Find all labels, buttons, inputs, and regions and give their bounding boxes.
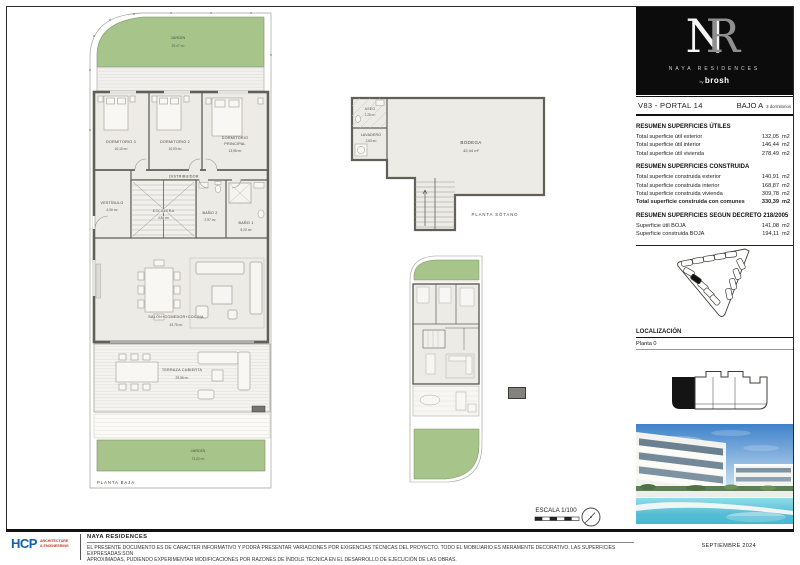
svg-text:2,28 m²: 2,28 m² — [365, 113, 376, 117]
floor-label: PLANTA BAJA — [97, 480, 135, 485]
sofa — [196, 262, 244, 274]
mini-table — [420, 395, 440, 405]
room-name: JARDÍN — [191, 449, 206, 453]
project-name: NAYA RESIDENCES — [87, 534, 634, 543]
svg-text:42,44 m²: 42,44 m² — [463, 148, 479, 153]
building-right — [734, 464, 793, 488]
dining-table — [145, 268, 173, 312]
room-name: DISTRIBUIDOR — [169, 175, 199, 179]
svg-text:4,84 m²: 4,84 m² — [158, 216, 170, 220]
section-marker — [508, 387, 526, 399]
location-floor: Planta 0 — [636, 338, 793, 350]
render-photo — [636, 424, 793, 524]
floor-label: PLANTA SÓTANO — [472, 212, 519, 217]
svg-text:PRINCIPAL: PRINCIPAL — [224, 142, 245, 146]
sofa — [250, 262, 262, 314]
svg-text:43,75 m²: 43,75 m² — [169, 323, 183, 327]
mini-terrace — [413, 386, 479, 416]
table-section: RESUMEN SUPERFICIES SEGUN DECRETO 218/20… — [636, 213, 793, 239]
garden-bottom: JARDÍN 73,02 m² — [97, 440, 265, 471]
mini-plan — [408, 254, 486, 486]
building-elevation — [665, 368, 785, 420]
plan-sheet: JARDÍN 29,47 m² — [0, 0, 800, 565]
room-name: BAÑO 2 — [202, 210, 217, 215]
unit-header: V83 - PORTAL 14 BAJO A 3 dormitorios — [636, 96, 793, 116]
elevation-outline — [695, 372, 767, 410]
table-row: Superficie útil BOJA141,08m2 — [636, 222, 793, 230]
room-name: DORMITORIO 3 — [106, 140, 136, 144]
svg-text:29,56 m²: 29,56 m² — [175, 376, 189, 380]
hcp-tagline: ARCHITECTURE& ENGINEERING — [40, 539, 69, 547]
side-table — [212, 370, 223, 381]
svg-text:10,10 m²: 10,10 m² — [114, 147, 128, 151]
step-marker — [252, 406, 265, 412]
pergola-strip — [97, 67, 264, 92]
table-row: Total superficie útil exterior132,05m2 — [636, 133, 793, 141]
bed — [98, 96, 263, 136]
unit-id: V83 - PORTAL 14 — [638, 101, 703, 110]
room-name: TERRAZA CUBIERTA — [162, 368, 203, 372]
lounge-sofa — [238, 352, 250, 390]
svg-text:4,90 m²: 4,90 m² — [106, 208, 118, 212]
room-name: BODEGA — [460, 140, 482, 145]
svg-text:10,03 m²: 10,03 m² — [168, 147, 182, 151]
table-row: Total superficie construida vivienda309,… — [636, 190, 793, 198]
room-name: ASEO — [365, 107, 376, 111]
room-name: DORMITORIO 2 — [160, 140, 190, 144]
site-buildings — [681, 251, 746, 306]
table-row: Total superficie útil interior146,44m2 — [636, 141, 793, 149]
svg-text:2,63 m²: 2,63 m² — [366, 139, 377, 143]
unit-bedrooms: 3 dormitorios — [766, 104, 791, 109]
basement-walls — [352, 98, 544, 230]
table-section: RESUMEN SUPERFICIES CONSTRUIDA Total sup… — [636, 164, 793, 207]
room-name: JARDÍN — [171, 36, 186, 40]
garden-top: JARDÍN 29,47 m² — [97, 17, 264, 67]
outdoor-table — [116, 362, 158, 382]
svg-text:5,20 m²: 5,20 m² — [240, 228, 252, 232]
stairs: ESCALERA 4,84 m² — [131, 180, 196, 238]
pouf — [228, 310, 237, 319]
nr-monogram-icon: N R — [680, 17, 750, 63]
brand-logo: N R NAYA RESIDENCES by brosh — [636, 7, 793, 95]
tv-unit — [96, 264, 101, 298]
svg-text:2,97 m²: 2,97 m² — [204, 218, 216, 222]
ground-floor-plan: JARDÍN 29,47 m² — [86, 10, 286, 498]
svg-text:13,95 m²: 13,95 m² — [228, 149, 242, 153]
room-area: 29,47 m² — [171, 44, 185, 48]
title-bar: HCP ARCHITECTURE& ENGINEERING NAYA RESID… — [6, 529, 794, 562]
surface-tables: RESUMEN SUPERFICIES ÚTILES Total superfi… — [636, 118, 793, 246]
hcp-logo: HCP ARCHITECTURE& ENGINEERING — [11, 536, 75, 551]
room-name: SALÓN+COMEDOR+COCINA — [148, 314, 204, 319]
disclaimer: EL PRESENTE DOCUMENTO ES DE CARACTER INF… — [87, 545, 634, 564]
mini-garden-top — [414, 260, 479, 280]
table-row: Superficie construida BOJA194,11m2 — [636, 230, 793, 238]
room-name: VESTÍBULO — [101, 201, 124, 205]
elevation-unit-highlight — [672, 377, 695, 409]
location-title: LOCALIZACIÓN — [636, 329, 793, 338]
room-name: BAÑO 1 — [238, 220, 253, 225]
mini-building — [413, 284, 479, 384]
coffee-table — [212, 286, 232, 304]
table-row: Total superficie construida interior168,… — [636, 182, 793, 190]
scale-bar — [534, 515, 582, 523]
basement-plan: ASEO 2,28 m² LAVADERO 2,63 m² BODEGA 42,… — [343, 86, 558, 238]
studio-credit: by brosh — [699, 76, 729, 85]
table-row-total: Total superficie construida con comunes3… — [636, 198, 793, 206]
room-name: LAVADERO — [361, 133, 382, 137]
mini-garden-bottom — [414, 429, 479, 479]
svg-text:73,02 m²: 73,02 m² — [191, 457, 205, 461]
lounge-chair — [198, 390, 214, 399]
location-block: LOCALIZACIÓN Planta 0 — [636, 329, 793, 350]
room-name: DORMITORIO — [222, 136, 248, 140]
washer — [355, 144, 367, 156]
buffer-strip — [94, 414, 270, 438]
site-plan — [645, 248, 795, 328]
table-row: Total superficie útil vivienda278,49m2 — [636, 150, 793, 158]
brand-name: NAYA RESIDENCES — [669, 66, 761, 72]
table-row: Total superficie construida exterior140,… — [636, 173, 793, 181]
terrace: TERRAZA CUBIERTA 29,56 m² — [94, 344, 270, 412]
lounge-sofa — [198, 352, 238, 364]
footer-text: NAYA RESIDENCES EL PRESENTE DOCUMENTO ES… — [80, 534, 634, 560]
issue-date: SEPTIEMBRE 2024 — [701, 543, 756, 549]
north-compass-icon — [580, 506, 602, 528]
table-section: RESUMEN SUPERFICIES ÚTILES Total superfi… — [636, 124, 793, 158]
unit-floor: BAJO A — [737, 101, 764, 110]
room-name: ESCALERA — [153, 209, 175, 213]
